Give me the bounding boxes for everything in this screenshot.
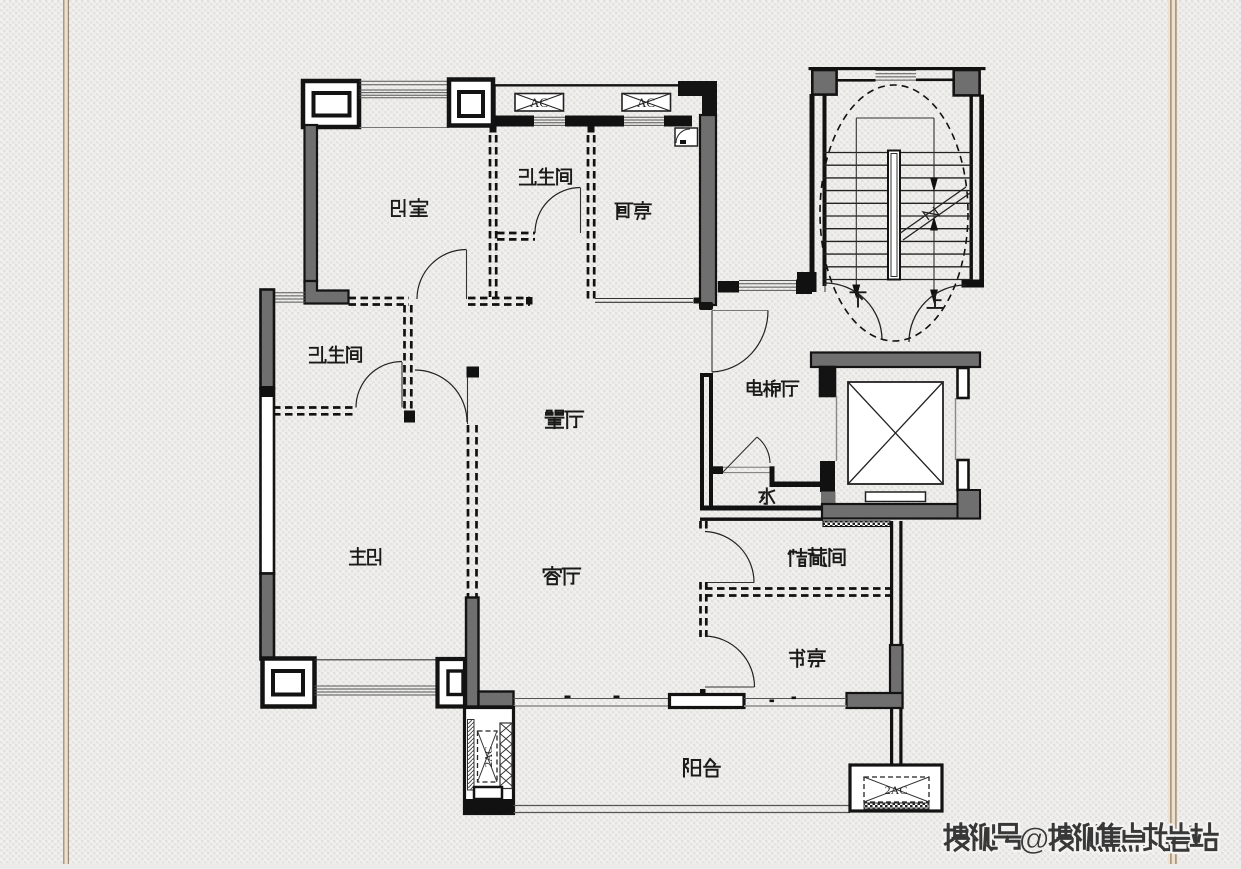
svg-text:2AC: 2AC <box>885 783 908 797</box>
svg-text:2AC: 2AC <box>483 747 495 768</box>
svg-text:AC: AC <box>637 95 655 110</box>
svg-text:AC: AC <box>530 95 548 110</box>
svg-text:@: @ <box>1019 821 1049 856</box>
